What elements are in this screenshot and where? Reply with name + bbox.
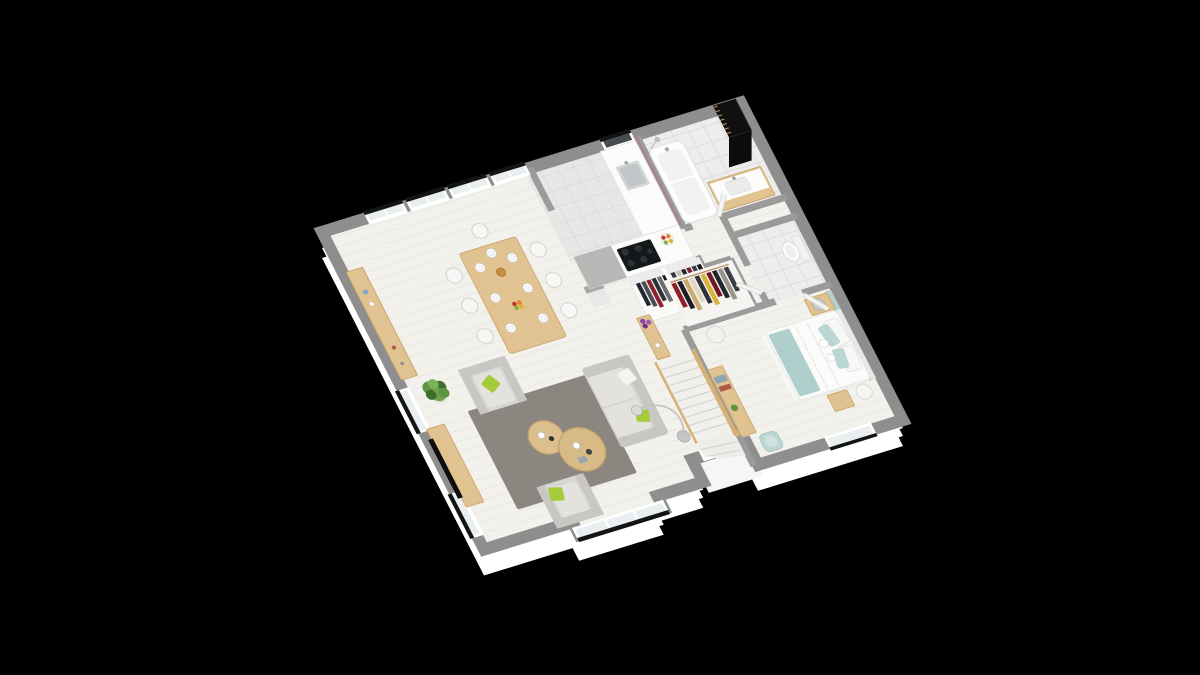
floor-plan-stage	[0, 0, 1200, 675]
floor-plan-render	[0, 0, 1200, 675]
plan	[311, 94, 917, 571]
